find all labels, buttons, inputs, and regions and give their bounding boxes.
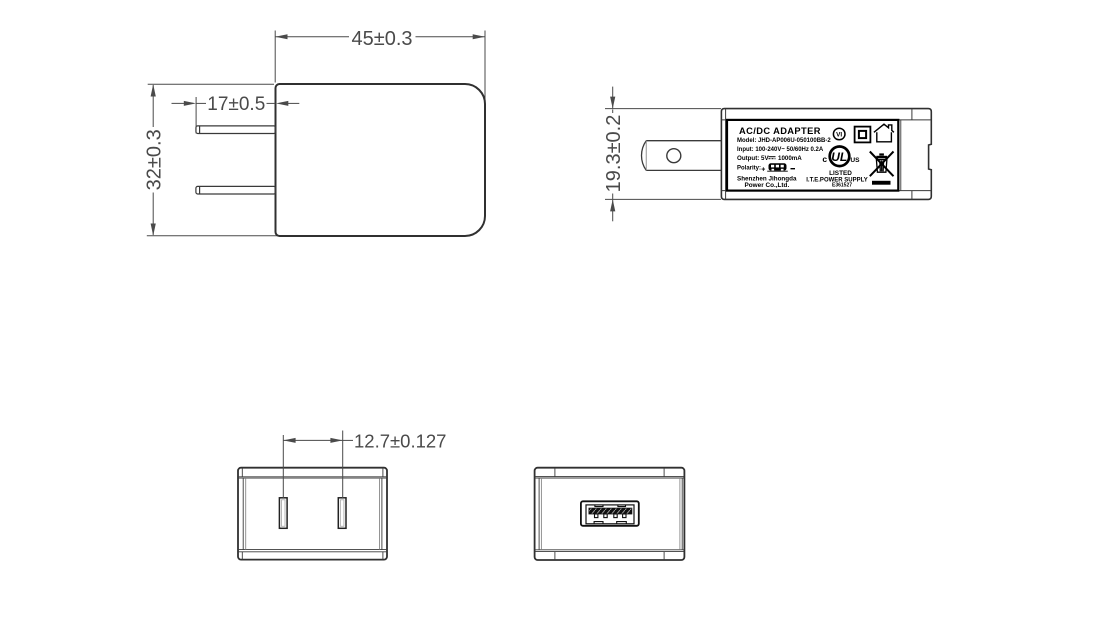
- svg-text:c: c: [822, 154, 827, 164]
- svg-text:US: US: [850, 157, 860, 164]
- svg-text:VI: VI: [836, 132, 842, 139]
- svg-text:12.7±0.127: 12.7±0.127: [354, 431, 446, 452]
- svg-text:Model: JHD-AP006U-050100BB-2: Model: JHD-AP006U-050100BB-2: [737, 138, 831, 144]
- svg-text:17±0.5: 17±0.5: [207, 94, 265, 115]
- svg-text:Polarity:: Polarity:: [737, 166, 761, 172]
- svg-text:+: +: [761, 166, 765, 173]
- svg-text:32±0.3: 32±0.3: [144, 129, 166, 190]
- svg-text:Output: 5V: Output: 5V: [737, 155, 769, 162]
- svg-text:Power Co.,Ltd.: Power Co.,Ltd.: [745, 182, 790, 189]
- svg-text:Input: 100-240V~ 50/60Hz 0.2A: Input: 100-240V~ 50/60Hz 0.2A: [737, 147, 824, 153]
- svg-text:45±0.3: 45±0.3: [351, 28, 412, 50]
- svg-text:19.3±0.2: 19.3±0.2: [603, 115, 625, 193]
- svg-text:1000mA: 1000mA: [778, 155, 802, 162]
- svg-text:AC/DC ADAPTER: AC/DC ADAPTER: [739, 126, 821, 136]
- svg-text:UL: UL: [831, 150, 847, 164]
- svg-text:LISTED: LISTED: [829, 170, 852, 177]
- svg-text:E361527: E361527: [832, 182, 852, 188]
